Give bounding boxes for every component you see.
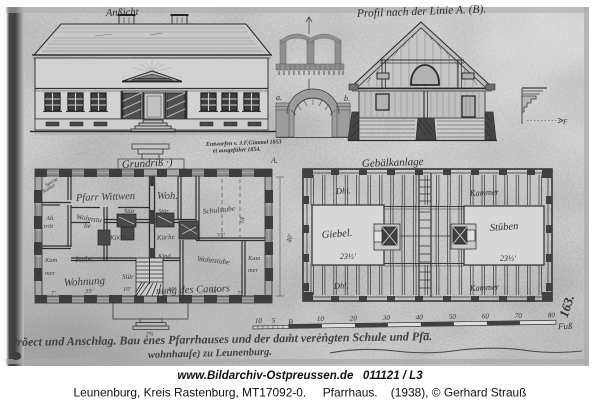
svg-text:20: 20	[350, 314, 358, 322]
svg-text:5: 5	[272, 317, 276, 325]
svg-text:Kammer: Kammer	[469, 186, 500, 198]
svg-text:35': 35'	[84, 288, 94, 295]
svg-text:Stube: Stube	[75, 254, 94, 264]
svg-text:60: 60	[482, 312, 490, 320]
svg-text:Pfarr Wittwen: Pfarr Wittwen	[75, 191, 136, 204]
svg-text:23½': 23½'	[340, 252, 356, 261]
svg-text:50: 50	[449, 313, 457, 321]
svg-text:Küche: Küche	[109, 233, 128, 242]
svg-text:Stür: Stür	[158, 208, 169, 215]
svg-text:mer: mer	[248, 267, 259, 274]
svg-text:Wohnung: Wohnung	[64, 275, 106, 289]
svg-text:b.: b.	[344, 94, 350, 103]
svg-text:7': 7'	[237, 290, 242, 297]
svg-text:Woh.: Woh.	[157, 191, 178, 202]
svg-text:be: be	[84, 221, 92, 230]
svg-text:mer: mer	[45, 270, 56, 277]
svg-text:Stür: Stür	[122, 273, 134, 281]
svg-text:Leunenburg, Kreis Rastenburg,: Leunenburg, Kreis Rastenburg, MT17092-0.…	[74, 386, 527, 400]
svg-text:a.: a.	[276, 93, 282, 102]
svg-text:A.: A.	[270, 156, 278, 165]
svg-text:Kind: Kind	[157, 253, 171, 260]
svg-text:70: 70	[515, 312, 523, 320]
svg-text:10': 10'	[123, 286, 132, 293]
svg-text:Stüben: Stüben	[489, 221, 518, 234]
svg-text:www.Bildarchiv-Ostpreussen.de: www.Bildarchiv-Ostpreussen.de 011121 / L…	[177, 370, 423, 382]
svg-text:7': 7'	[51, 290, 56, 297]
svg-text:Stür: Stür	[124, 208, 135, 215]
svg-text:Gebälkanlage: Gebälkanlage	[362, 156, 424, 170]
svg-text:80: 80	[548, 311, 556, 319]
svg-text:30: 30	[382, 314, 391, 322]
svg-text:10': 10'	[168, 286, 177, 293]
svg-text:Kammer: Kammer	[469, 281, 500, 293]
svg-text:F: F	[562, 118, 568, 126]
svg-text:40: 40	[416, 313, 424, 321]
svg-text:Giebel.: Giebel.	[321, 228, 352, 241]
svg-text:Ab.: Ab.	[45, 215, 55, 222]
svg-text:tritt: tritt	[44, 224, 53, 230]
svg-text:10: 10	[255, 317, 263, 325]
svg-text:Kam: Kam	[247, 255, 261, 262]
svg-text:Küche: Küche	[156, 233, 175, 242]
svg-text:Dhl.: Dhl.	[335, 185, 351, 196]
svg-text:23': 23'	[216, 232, 225, 240]
svg-text:Kam: Kam	[44, 257, 58, 264]
svg-text:Fuß: Fuß	[557, 321, 573, 331]
svg-text:Dhl.: Dhl.	[333, 280, 349, 291]
svg-text:10: 10	[317, 315, 325, 323]
svg-text:32': 32'	[209, 288, 219, 295]
svg-text:23½': 23½'	[500, 254, 516, 263]
